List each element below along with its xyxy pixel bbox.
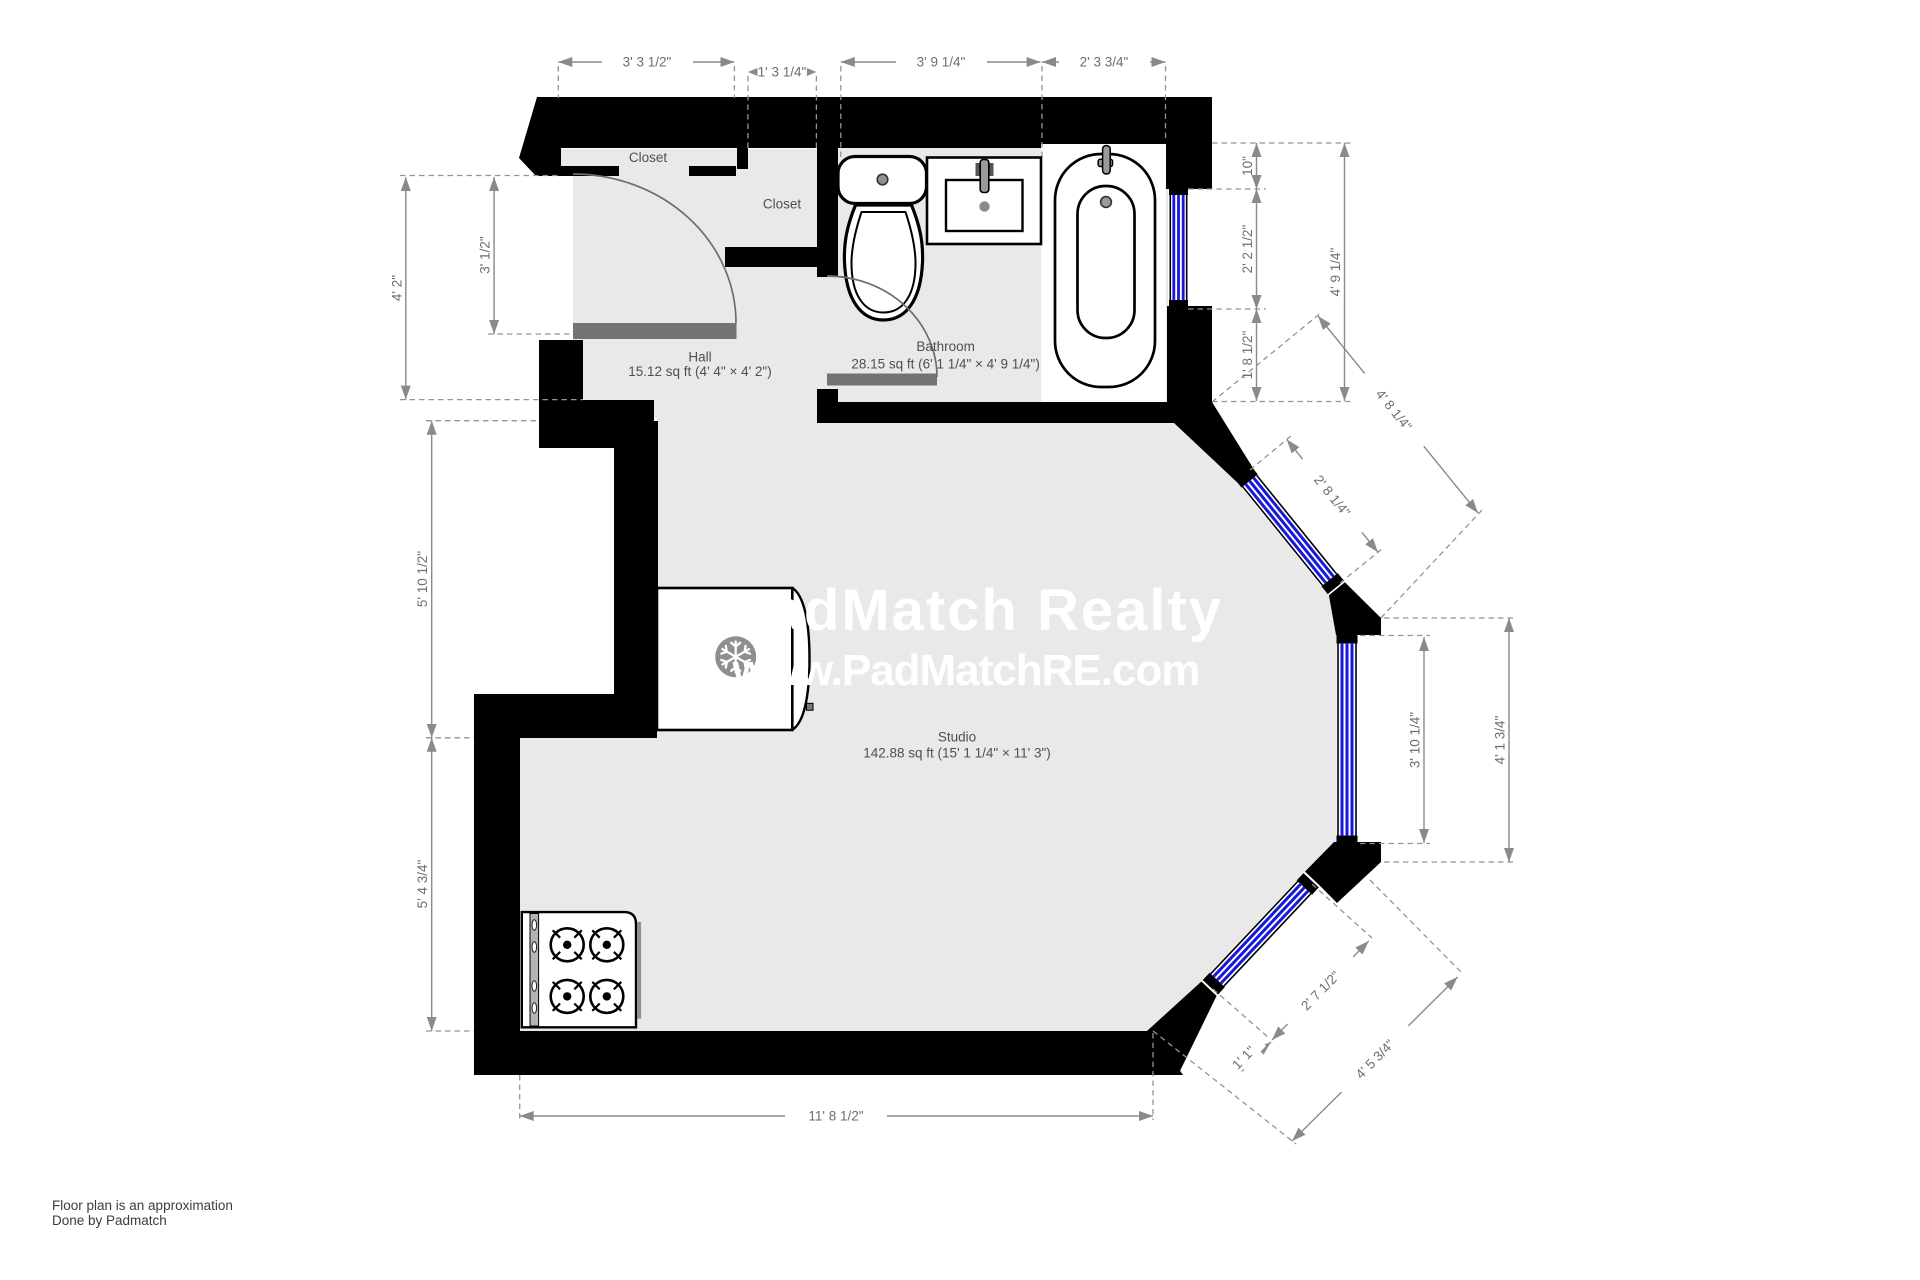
svg-text:1' 8 1/2": 1' 8 1/2" bbox=[1240, 330, 1255, 379]
svg-text:Bathroom: Bathroom bbox=[916, 339, 975, 354]
svg-text:3' 1/2": 3' 1/2" bbox=[478, 236, 493, 274]
svg-text:4' 9 1/4": 4' 9 1/4" bbox=[1328, 247, 1343, 296]
svg-text:Studio: Studio bbox=[938, 730, 976, 745]
svg-text:5' 4 3/4": 5' 4 3/4" bbox=[415, 859, 430, 908]
svg-text:PadMatch Realty: PadMatch Realty bbox=[729, 578, 1223, 643]
svg-text:2' 2 1/2": 2' 2 1/2" bbox=[1240, 224, 1255, 273]
svg-text:4' 1 3/4": 4' 1 3/4" bbox=[1493, 715, 1508, 764]
svg-text:11' 8 1/2": 11' 8 1/2" bbox=[808, 1109, 863, 1124]
svg-text:Done by Padmatch: Done by Padmatch bbox=[52, 1213, 167, 1228]
svg-text:10": 10" bbox=[1240, 156, 1255, 176]
svg-text:28.15 sq ft (6' 1 1/4" × 4' 9: 28.15 sq ft (6' 1 1/4" × 4' 9 1/4") bbox=[851, 357, 1039, 372]
svg-text:Floor plan is an approximation: Floor plan is an approximation bbox=[52, 1198, 233, 1213]
svg-text:4' 2": 4' 2" bbox=[389, 275, 404, 301]
svg-text:15.12 sq ft (4' 4" × 4' 2"): 15.12 sq ft (4' 4" × 4' 2") bbox=[628, 364, 771, 379]
svg-text:Closet: Closet bbox=[629, 150, 668, 165]
svg-text:Closet: Closet bbox=[763, 197, 802, 212]
svg-text:3' 10 1/4": 3' 10 1/4" bbox=[1408, 712, 1423, 768]
svg-text:Hall: Hall bbox=[688, 350, 711, 365]
svg-text:3' 9 1/4": 3' 9 1/4" bbox=[917, 55, 966, 70]
svg-text:2' 3 3/4": 2' 3 3/4" bbox=[1080, 55, 1129, 70]
svg-text:www.PadMatchRE.com: www.PadMatchRE.com bbox=[732, 646, 1200, 695]
svg-text:3' 3 1/2": 3' 3 1/2" bbox=[623, 55, 672, 70]
svg-text:142.88 sq ft (15' 1 1/4" × 11': 142.88 sq ft (15' 1 1/4" × 11' 3") bbox=[863, 746, 1050, 761]
svg-text:1' 3 1/4": 1' 3 1/4" bbox=[758, 65, 807, 80]
svg-text:5' 10 1/2": 5' 10 1/2" bbox=[415, 551, 430, 607]
